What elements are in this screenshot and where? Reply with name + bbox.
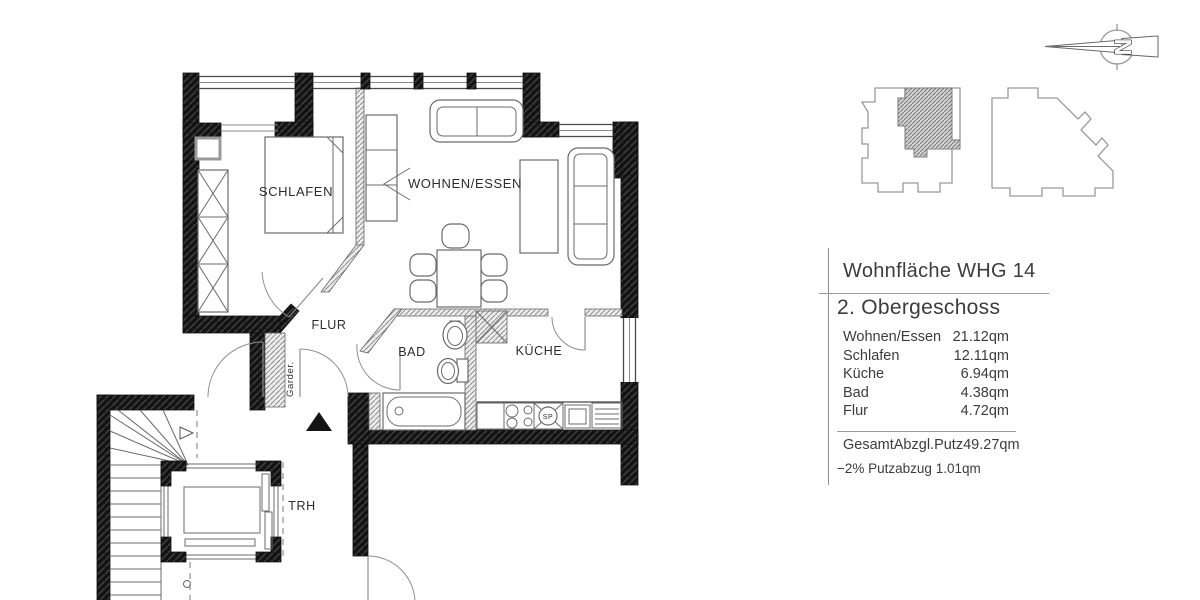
sink-label: SP — [543, 414, 554, 421]
area-row-label: Flur — [843, 402, 868, 421]
north-letter: N — [1110, 39, 1136, 56]
total-label: Gesamt — [843, 437, 894, 453]
area-row-value: 4.38qm — [961, 384, 1009, 403]
area-row: Schlafen 12.11qm — [843, 347, 1009, 366]
sink: SP — [534, 403, 563, 429]
room-label-wohnen-essen: WOHNEN/ESSEN — [408, 176, 522, 191]
wall-niche — [196, 138, 220, 159]
dining-set — [410, 224, 507, 307]
counter — [477, 403, 504, 429]
room-label-garderobe: Garder. — [285, 361, 296, 397]
staircase — [110, 410, 283, 600]
wardrobe — [198, 170, 228, 312]
area-table-panel: Wohnfläche WHG 14 2. Obergeschoss Wohnen… — [818, 250, 1064, 485]
wohnen-window — [313, 73, 523, 89]
furniture-wohnen — [366, 100, 614, 307]
area-row-label: Küche — [843, 365, 884, 384]
trh-door — [368, 556, 415, 600]
dining-table — [437, 250, 481, 307]
corner-window — [559, 125, 613, 137]
panel-title: Wohnfläche WHG 14 — [843, 260, 1064, 283]
total-value: 49.27qm — [963, 437, 1019, 453]
elevator-cab — [184, 487, 260, 533]
area-row-label: Schlafen — [843, 347, 899, 366]
stove — [504, 403, 534, 429]
elevator-door — [262, 474, 269, 511]
kueche-window — [621, 318, 638, 382]
chair — [481, 254, 507, 276]
counter-drawers — [592, 403, 622, 428]
sofa-three-seat — [568, 148, 614, 265]
stair-direction-arrow — [180, 427, 193, 439]
area-row: Bad 4.38qm — [843, 384, 1009, 403]
panel-divider — [819, 293, 1049, 294]
room-label-flur: FLUR — [311, 318, 346, 332]
chair — [410, 280, 436, 302]
panel-floor: 2. Obergeschoss — [837, 296, 1064, 320]
area-row-value: 6.94qm — [961, 365, 1009, 384]
deduction-note: −2% Putzabzug 1.01qm — [837, 461, 981, 476]
elevator-counterweight — [185, 539, 255, 546]
furniture-schlafen — [198, 137, 343, 312]
washbasin — [443, 321, 467, 349]
area-row: Küche 6.94qm — [843, 365, 1009, 384]
north-arrow: N — [1045, 24, 1158, 70]
chair — [410, 254, 436, 276]
key-plan-right — [992, 88, 1113, 196]
shelf-closet — [366, 115, 410, 221]
bathtub — [383, 393, 465, 430]
total-method: Abzgl.Putz — [894, 437, 963, 453]
area-row-label: Wohnen/Essen — [843, 328, 941, 347]
room-label-trh: TRH — [288, 499, 316, 513]
dishwasher — [565, 405, 590, 428]
room-label-bad: BAD — [398, 345, 426, 359]
furniture-bad — [383, 321, 468, 430]
panel-divider — [837, 431, 1016, 432]
area-row: Wohnen/Essen 21.12qm — [843, 328, 1009, 347]
area-rows: Wohnen/Essen 21.12qm Schlafen 12.11qm Kü… — [843, 328, 1009, 421]
total-row: Gesamt Abzgl.Putz 49.27qm — [843, 437, 1009, 453]
room-label-kueche: KÜCHE — [516, 344, 563, 358]
area-row: Flur 4.72qm — [843, 402, 1009, 421]
highlighted-apartment — [898, 88, 960, 157]
elevator — [161, 461, 281, 562]
coffee-table — [520, 160, 558, 253]
area-row-value: 4.72qm — [961, 402, 1009, 421]
garderobe-closet — [265, 333, 285, 407]
furniture-kueche: SP — [477, 402, 622, 429]
floorplan-page: { "floor_plan": { "room_labels": { "schl… — [0, 0, 1200, 600]
toilet — [438, 359, 469, 384]
chair — [481, 280, 507, 302]
apartment-entrance-door — [300, 349, 348, 397]
entrance-marker-triangle — [306, 412, 332, 431]
sofa-two-seat — [430, 100, 523, 142]
area-row-label: Bad — [843, 384, 869, 403]
panel-vertical-rule — [828, 248, 829, 485]
key-plan-left — [862, 88, 960, 192]
chair — [442, 224, 469, 248]
area-row-value: 21.12qm — [953, 328, 1009, 347]
room-label-schlafen: SCHLAFEN — [259, 184, 333, 199]
ventilation-shaft — [476, 311, 507, 343]
area-row-value: 12.11qm — [954, 347, 1009, 366]
